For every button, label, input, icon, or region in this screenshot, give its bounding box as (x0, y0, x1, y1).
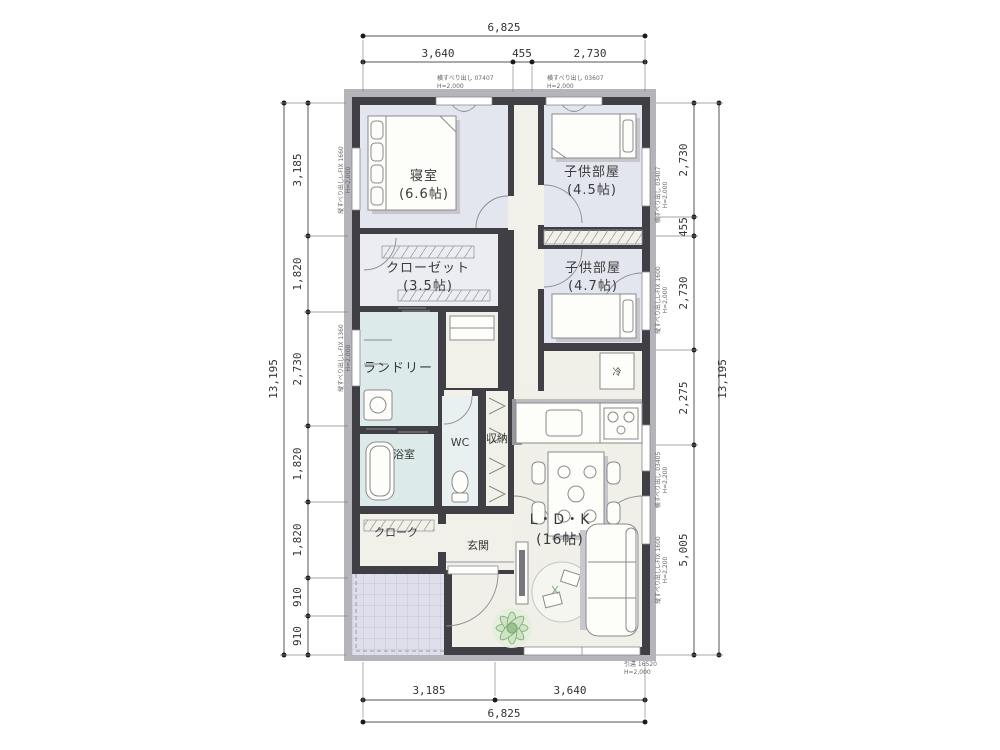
pillow (371, 187, 383, 205)
window-top-kids1 (546, 97, 602, 105)
dim-right-overall: 13,195 (716, 359, 729, 399)
dims-top: 6,825 3,640 455 2,730 (361, 21, 648, 92)
kids1-label: 子供部屋 (564, 165, 620, 180)
winlabel-top-bedroom: 横すべり出し 07407 (437, 74, 494, 82)
bedroom-label: 寝室 (410, 168, 438, 184)
dim-left-overall: 13,195 (267, 359, 280, 399)
closet-hanger-rod (382, 246, 474, 258)
window-left-bedroom (352, 148, 360, 210)
winlabel-right-kids1-h: H=2,000 (662, 181, 669, 208)
pillow (371, 165, 383, 183)
storage-floor (486, 391, 508, 506)
pillow (623, 300, 633, 332)
kids-closet-rod (544, 230, 642, 244)
window-right-kids2 (642, 272, 650, 330)
door-gap-kids2 (538, 249, 544, 289)
dim-top-overall: 6,825 (487, 21, 520, 34)
dims-left: 3,185 1,820 2,730 1,820 1,820 910 910 13… (267, 101, 348, 658)
dim-left-seg4: 1,820 (291, 447, 304, 480)
front-door-slot (448, 566, 498, 574)
dim-top-seg2: 455 (512, 47, 532, 60)
ldk-size: (16帖) (536, 532, 584, 548)
winlabel-right-kids2-h: H=2,000 (662, 286, 669, 313)
dining-chair (607, 502, 620, 524)
toilet-tank (452, 493, 468, 502)
winlabel-top-kids1-h: H=2,000 (547, 83, 574, 90)
kids1-size: (4.5帖) (567, 183, 617, 198)
closet-size: (3.5帖) (403, 279, 453, 294)
door-gap-bedroom (508, 196, 514, 230)
window-top-bedroom (436, 97, 492, 105)
dim-right-seg4: 2,275 (677, 381, 690, 414)
dims-bottom: 3,185 3,640 6,825 (361, 662, 648, 725)
genkan-label: 玄関 (467, 538, 489, 552)
door-gap-cloak (438, 524, 446, 552)
winlabel-right-ldk-upper-h: H=2,200 (662, 466, 669, 493)
tv (519, 550, 525, 596)
dim-top-seg1: 3,640 (421, 47, 454, 60)
winlabel-top-bedroom-h: H=2,000 (437, 83, 464, 90)
kitchen-counter (516, 403, 642, 443)
kids2-label: 子供部屋 (565, 261, 621, 276)
winlabel-bottom-sliding: 引違 16520 (624, 660, 657, 668)
bedroom-size: (6.6帖) (399, 187, 449, 202)
pillow (623, 120, 633, 152)
dim-right-seg2: 455 (677, 217, 690, 237)
winlabel-left-bedroom-h: H=2,000 (345, 166, 352, 193)
window-right-ldk-lower (642, 496, 650, 544)
dim-right-seg1: 2,730 (677, 143, 690, 176)
window-left-laundry (352, 330, 360, 386)
hallway-floor (514, 105, 538, 391)
porch-tile-grid (352, 574, 444, 655)
closet-label: クローゼット (386, 261, 470, 276)
winlabel-right-ldk-upper: 横すべり出し 03405 (654, 452, 662, 509)
washing-machine (364, 390, 392, 420)
kids2-size: (4.7帖) (568, 279, 618, 294)
dim-top-seg3: 2,730 (573, 47, 606, 60)
laundry-label: ランドリー (363, 361, 433, 376)
dim-left-seg6: 910 (291, 587, 304, 607)
winlabel-bottom-sliding-h: H=2,000 (624, 669, 651, 676)
winlabel-right-kids2: 縦すべり出しL-FIX 1600 (654, 266, 662, 334)
floor-plan-page: 寝室 (6.6帖) 子供部屋 (4.5帖) 子供部屋 (4.7帖) クローゼット… (0, 0, 1000, 750)
door-gap-kids1 (538, 185, 544, 225)
wc-label: WC (451, 436, 470, 449)
winlabel-right-kids1: 横すべり出し 03407 (654, 167, 662, 224)
window-right-ldk-upper (642, 425, 650, 471)
winlabel-right-ldk-lower: 縦すべり出しL-FIX 1600 (654, 536, 662, 604)
dim-left-seg1: 3,185 (291, 153, 304, 186)
dim-left-seg2: 1,820 (291, 257, 304, 290)
sofa (586, 524, 638, 636)
dining-chair (532, 462, 545, 484)
fridge-label: 冷 (612, 366, 621, 378)
dim-bottom-seg1: 3,185 (412, 684, 445, 697)
plant (492, 608, 532, 648)
dim-left-seg3: 2,730 (291, 352, 304, 385)
pillow (371, 121, 383, 139)
dim-bottom-overall: 6,825 (487, 707, 520, 720)
ldk-label: L・D・K (530, 512, 591, 528)
dim-left-seg5: 1,820 (291, 523, 304, 556)
cloak-label: クローク (374, 526, 418, 539)
dining-chair (607, 462, 620, 484)
window-right-kids1 (642, 148, 650, 206)
toilet-bowl (452, 471, 468, 493)
floor-plan-drawing: 寝室 (6.6帖) 子供部屋 (4.5帖) 子供部屋 (4.7帖) クローゼット… (0, 0, 1000, 750)
winlabel-top-kids1: 横すべり出し 03607 (547, 74, 604, 82)
winlabel-left-laundry-h: H=2,000 (345, 344, 352, 371)
dim-right-seg5: 5,005 (677, 533, 690, 566)
bath-label: 浴室 (393, 447, 415, 461)
door-gap-wc (444, 390, 472, 396)
dim-right-seg3: 2,730 (677, 276, 690, 309)
winlabel-left-laundry: 縦すべり出しL-FIX 1360 (337, 324, 345, 392)
winlabel-left-bedroom: 縦すべり出しL-FIX 1660 (337, 146, 345, 214)
pillow (371, 143, 383, 161)
storage-label: 収納 (486, 432, 508, 445)
winlabel-right-ldk-lower-h: H=2,200 (662, 556, 669, 583)
dim-bottom-seg2: 3,640 (553, 684, 586, 697)
dim-left-seg7: 910 (291, 626, 304, 646)
